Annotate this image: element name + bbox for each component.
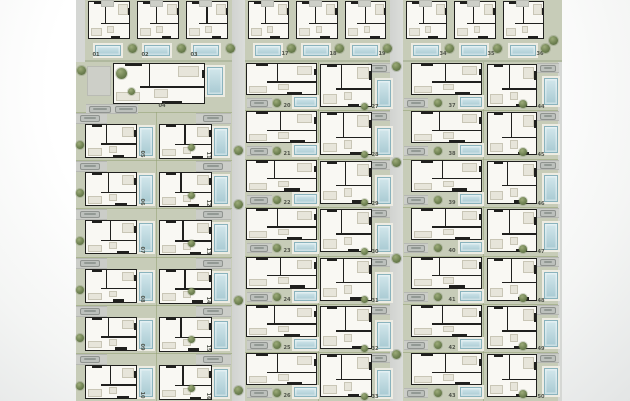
furniture	[162, 342, 176, 350]
furniture	[523, 67, 534, 79]
wall-segment	[190, 252, 202, 255]
unit-label: 25	[283, 345, 290, 350]
interior-wall	[101, 288, 137, 289]
wall-segment	[92, 269, 101, 272]
interior-wall	[336, 185, 372, 186]
pool-deck	[350, 43, 380, 58]
furniture	[251, 28, 262, 36]
furniture	[122, 320, 133, 330]
wall-segment	[479, 166, 482, 172]
house-plan	[246, 305, 317, 337]
furniture	[122, 272, 133, 282]
car-icon	[80, 356, 100, 363]
furniture	[278, 84, 289, 90]
furniture	[107, 26, 113, 34]
house-plan	[85, 172, 137, 206]
furniture	[510, 92, 518, 101]
pool	[214, 321, 228, 349]
unit-label: 34	[439, 51, 446, 56]
furniture	[357, 212, 368, 224]
furniture	[344, 92, 352, 101]
unit-label: 29	[371, 201, 378, 206]
interior-wall	[502, 137, 537, 138]
unit-label: 43	[448, 394, 455, 399]
pool-deck	[301, 43, 331, 58]
tree-icon	[77, 66, 86, 75]
tree-icon	[188, 240, 195, 247]
pool-deck	[458, 337, 484, 351]
furniture	[297, 356, 313, 365]
furniture	[414, 134, 432, 141]
wall-segment	[314, 69, 317, 75]
interior-wall	[502, 379, 537, 380]
wall-segment	[166, 124, 176, 127]
unit-label: 47	[537, 250, 544, 255]
tree-icon	[361, 248, 368, 255]
pool	[460, 291, 482, 301]
unit-label: 08	[139, 295, 144, 302]
car-icon	[371, 65, 387, 72]
tree-icon	[273, 196, 281, 204]
interior-wall	[432, 323, 482, 324]
furniture	[414, 376, 432, 383]
car-icon	[80, 163, 100, 170]
unit-label: 37	[448, 103, 455, 108]
wall-segment	[494, 209, 503, 212]
furniture	[357, 164, 368, 176]
wall-segment	[314, 311, 317, 317]
wall-segment	[479, 311, 482, 317]
furniture	[197, 223, 209, 233]
wall-segment	[327, 112, 336, 115]
wall-segment	[115, 347, 126, 350]
wall-segment	[113, 299, 124, 302]
site-plan: 0102031718193435360405060708091011121314…	[0, 0, 630, 401]
pool	[377, 225, 391, 252]
wall-segment	[166, 172, 176, 175]
car-icon	[540, 259, 556, 266]
interior-wall	[101, 143, 137, 144]
car-icon	[250, 294, 268, 301]
tree-icon	[188, 336, 195, 343]
furniture	[316, 26, 322, 34]
house-plan	[246, 208, 317, 240]
furniture	[197, 127, 209, 137]
car-icon	[203, 260, 223, 267]
wall-segment	[327, 306, 336, 309]
tree-icon	[273, 99, 281, 107]
house-plan	[320, 112, 372, 155]
interior-wall	[140, 86, 204, 87]
pool-deck	[542, 76, 560, 107]
furniture	[344, 188, 352, 197]
car-icon	[203, 211, 223, 218]
pool-deck	[212, 126, 230, 158]
furniture	[490, 288, 503, 297]
tree-icon	[519, 100, 527, 108]
pool	[214, 224, 228, 252]
wall-segment	[494, 258, 503, 261]
furniture	[278, 229, 289, 235]
furniture	[109, 242, 117, 249]
interior-wall	[261, 23, 290, 24]
wall-segment	[494, 306, 503, 309]
furniture	[88, 389, 102, 396]
tree-icon	[361, 103, 368, 110]
pool-deck	[212, 367, 230, 399]
pool-deck	[458, 192, 484, 206]
wall-segment	[256, 353, 269, 356]
wall-segment	[188, 204, 200, 207]
tree-icon	[361, 199, 368, 206]
pool	[544, 320, 558, 347]
pool-deck	[542, 173, 560, 204]
unit-label: 15	[205, 344, 210, 351]
unit-label: 32	[371, 346, 378, 351]
furniture	[414, 183, 432, 190]
interior-wall	[502, 233, 537, 234]
garage	[467, 0, 480, 7]
garage	[261, 0, 274, 7]
tree-icon	[519, 294, 527, 302]
car-icon	[80, 211, 100, 218]
house-plan	[411, 63, 482, 95]
tree-icon	[361, 151, 368, 158]
car-icon	[540, 307, 556, 314]
patio	[87, 66, 111, 96]
unit-label: 16	[205, 392, 210, 399]
unit-label: 24	[283, 297, 290, 302]
unit-label: 45	[537, 153, 544, 158]
wall-segment	[327, 64, 336, 67]
furniture	[462, 163, 478, 172]
furniture	[249, 328, 267, 335]
wall-segment	[350, 297, 361, 300]
interior-wall	[511, 259, 512, 283]
furniture	[91, 28, 102, 36]
unit-label: 12	[205, 200, 210, 207]
car-icon	[407, 294, 425, 301]
tree-icon	[392, 62, 401, 71]
furniture	[484, 4, 493, 15]
interior-wall	[108, 318, 109, 337]
wall-segment	[421, 305, 434, 308]
furniture	[523, 164, 534, 176]
pool-deck	[458, 289, 484, 303]
wall-segment	[270, 36, 279, 39]
interior-wall	[432, 130, 482, 131]
furniture	[297, 66, 313, 75]
furniture	[323, 385, 337, 394]
furniture	[344, 237, 352, 246]
furniture	[323, 239, 337, 248]
car-icon	[407, 342, 425, 349]
furniture	[267, 26, 273, 34]
furniture	[323, 143, 337, 152]
wall-segment	[125, 63, 142, 66]
unit-label: 31	[371, 298, 378, 303]
pool-deck	[458, 385, 484, 399]
wall-segment	[92, 365, 101, 368]
pool	[460, 194, 482, 204]
furniture	[523, 212, 534, 224]
interior-wall	[432, 81, 482, 82]
tree-icon	[392, 254, 401, 263]
car-icon	[115, 106, 137, 113]
furniture	[109, 387, 117, 394]
tree-icon	[383, 44, 392, 53]
tree-icon	[273, 341, 281, 349]
pool	[294, 145, 317, 155]
wall-segment	[314, 262, 317, 268]
tree-icon	[392, 158, 401, 167]
tree-icon	[541, 44, 550, 53]
furniture	[462, 114, 478, 123]
interior-wall	[345, 162, 346, 186]
pool-deck	[458, 95, 484, 109]
tree-icon	[434, 341, 442, 349]
furniture	[197, 272, 209, 282]
interior-wall	[101, 192, 137, 193]
pool	[544, 175, 558, 202]
wall-segment	[479, 117, 482, 123]
furniture	[510, 285, 518, 294]
furniture	[510, 140, 518, 149]
wall-segment	[348, 104, 359, 107]
wall-segment	[256, 160, 269, 163]
pool	[413, 45, 439, 56]
house-plan	[159, 269, 212, 304]
pool	[544, 78, 558, 105]
interior-wall	[274, 161, 275, 179]
garage	[419, 0, 432, 7]
unit-label: 46	[537, 201, 544, 206]
pool	[214, 273, 228, 301]
interior-wall	[343, 113, 344, 137]
furniture	[457, 28, 468, 36]
interior-wall	[357, 23, 386, 24]
pool	[294, 194, 317, 204]
house-plan	[85, 269, 137, 303]
car-icon	[250, 390, 268, 397]
wall-segment	[421, 63, 434, 66]
furniture	[297, 260, 313, 269]
interior-wall	[182, 221, 183, 240]
house-plan	[246, 353, 317, 385]
pool-deck	[542, 221, 560, 252]
unit-label: 50	[537, 395, 544, 400]
wall-segment	[421, 257, 434, 260]
furniture	[348, 28, 359, 36]
car-icon	[371, 307, 387, 314]
furniture	[109, 194, 117, 201]
house-plan	[411, 160, 482, 192]
tree-icon	[177, 44, 186, 53]
house-plan	[487, 161, 537, 204]
interior-wall	[419, 23, 448, 24]
interior-wall	[106, 270, 107, 289]
pool	[377, 128, 391, 155]
tree-icon	[519, 197, 527, 205]
unit-label: 30	[371, 250, 378, 255]
furniture	[88, 245, 102, 252]
interior-wall	[432, 372, 482, 373]
wall-segment	[314, 214, 317, 220]
interior-wall	[277, 64, 278, 82]
interior-wall	[149, 64, 150, 87]
furniture	[197, 368, 209, 378]
furniture	[443, 132, 454, 138]
furniture	[443, 229, 454, 235]
pool-deck	[212, 319, 230, 351]
unit-label: 49	[537, 346, 544, 351]
pool-deck	[542, 318, 560, 349]
pool-deck	[508, 43, 538, 58]
pool	[294, 387, 317, 397]
wall-segment	[494, 64, 503, 67]
pool	[544, 368, 558, 395]
garage	[101, 0, 114, 7]
house-plan	[85, 317, 137, 351]
tree-icon	[234, 146, 243, 155]
interior-wall	[336, 233, 372, 234]
tree-icon	[519, 342, 527, 350]
garage	[516, 0, 529, 7]
furniture	[249, 279, 267, 286]
garage	[309, 0, 322, 7]
furniture	[523, 309, 534, 321]
interior-wall	[277, 209, 278, 227]
furniture	[357, 309, 368, 321]
house-plan	[487, 258, 537, 301]
car-icon	[80, 260, 100, 267]
furniture	[154, 89, 168, 97]
furniture	[414, 86, 432, 93]
furniture	[490, 336, 503, 345]
interior-wall	[336, 137, 372, 138]
furniture	[162, 197, 176, 205]
car-icon	[407, 148, 425, 155]
interior-wall	[110, 221, 111, 240]
furniture	[323, 288, 337, 297]
wall-segment	[348, 394, 359, 397]
furniture	[278, 277, 289, 283]
wall-segment	[421, 160, 434, 163]
furniture	[344, 140, 352, 149]
tree-icon	[76, 334, 84, 342]
furniture	[443, 84, 454, 90]
tree-icon	[445, 44, 454, 53]
wall-segment	[166, 220, 176, 223]
interior-wall	[110, 366, 111, 385]
tree-icon	[361, 345, 368, 352]
house-plan	[411, 257, 482, 289]
interior-wall	[182, 366, 183, 385]
interior-wall	[509, 355, 510, 379]
furniture	[205, 26, 211, 34]
pool	[214, 128, 228, 156]
furniture	[326, 4, 335, 15]
interior-wall	[502, 330, 537, 331]
unit-label: 14	[205, 296, 210, 303]
pool	[255, 45, 281, 56]
furniture	[297, 114, 313, 123]
furniture	[249, 231, 267, 238]
interior-wall	[445, 354, 446, 372]
pool	[294, 291, 317, 301]
interior-wall	[432, 178, 482, 179]
interior-wall	[442, 161, 443, 179]
pool	[294, 97, 317, 107]
house-plan	[159, 124, 212, 159]
furniture	[109, 146, 117, 153]
tree-icon	[76, 141, 84, 149]
car-icon	[371, 113, 387, 120]
furniture	[443, 374, 454, 380]
house-plan	[320, 258, 372, 301]
wall-segment	[92, 317, 101, 320]
furniture	[88, 196, 102, 203]
unit-label: 17	[281, 51, 288, 56]
furniture	[344, 334, 352, 343]
furniture	[523, 261, 534, 273]
furniture	[443, 277, 454, 283]
house-plan	[246, 63, 317, 95]
interior-wall	[267, 275, 317, 276]
wall-segment	[369, 71, 372, 80]
tree-icon	[335, 44, 344, 53]
unit-label: 03	[190, 52, 197, 57]
car-icon	[407, 245, 425, 252]
interior-wall	[511, 113, 512, 137]
pool	[460, 387, 482, 397]
furniture	[344, 382, 352, 391]
unit-label: 04	[158, 103, 165, 108]
furniture	[122, 175, 133, 185]
pool-deck	[459, 43, 489, 58]
wall-segment	[348, 249, 359, 252]
unit-label: 07	[139, 247, 144, 254]
house-plan	[487, 64, 537, 107]
tree-icon	[361, 393, 368, 400]
house-plan	[159, 317, 212, 352]
wall-segment	[256, 305, 269, 308]
interior-wall	[341, 210, 342, 234]
furniture	[490, 385, 503, 394]
wall-segment	[327, 161, 336, 164]
pool	[352, 45, 378, 56]
house-plan	[159, 220, 212, 255]
interior-wall	[267, 323, 317, 324]
interior-wall	[467, 23, 496, 24]
interior-wall	[277, 354, 278, 372]
car-icon	[203, 115, 223, 122]
pool	[461, 45, 487, 56]
interior-wall	[439, 258, 440, 276]
furniture	[462, 211, 478, 220]
furniture	[490, 94, 503, 103]
furniture	[510, 334, 518, 343]
furniture	[216, 4, 225, 15]
pool-deck	[411, 43, 441, 58]
furniture	[278, 181, 289, 187]
pool-deck	[205, 65, 225, 97]
furniture	[167, 4, 176, 15]
car-icon	[250, 245, 268, 252]
furniture	[357, 357, 368, 369]
interior-wall	[267, 178, 317, 179]
interior-wall	[309, 23, 338, 24]
